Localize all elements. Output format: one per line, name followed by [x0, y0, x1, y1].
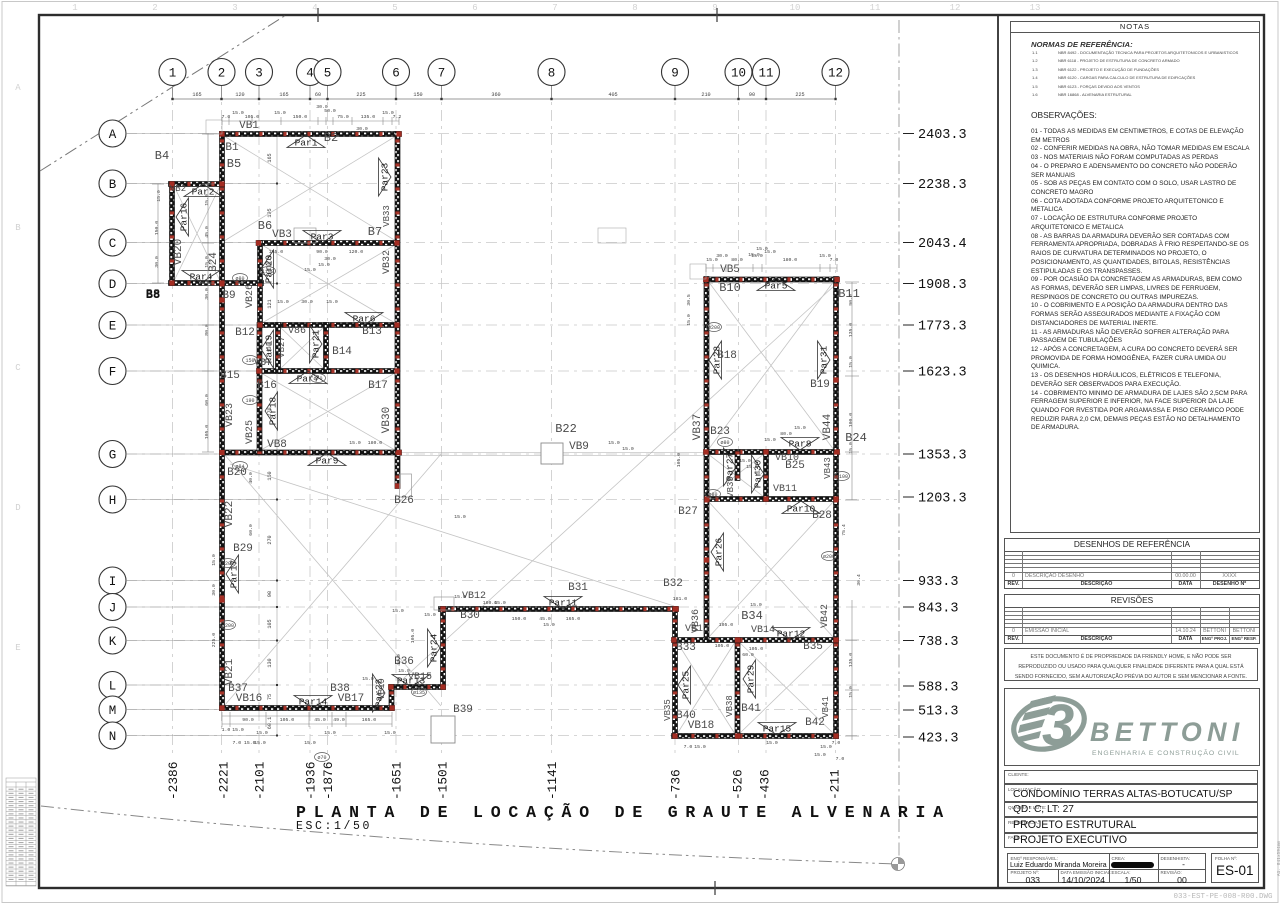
svg-text:VB23: VB23 — [225, 403, 236, 427]
svg-text:-211: -211 — [828, 769, 843, 800]
svg-text:B: B — [15, 223, 21, 233]
svg-text:75.0: 75.0 — [337, 114, 349, 120]
svg-text:15.0: 15.0 — [750, 602, 762, 608]
svg-text:15.0: 15.0 — [304, 740, 316, 746]
svg-text:15.0: 15.0 — [326, 299, 338, 305]
svg-text:15.0: 15.0 — [277, 299, 289, 305]
svg-text:Par29: Par29 — [746, 664, 757, 693]
svg-text:N: N — [109, 730, 117, 744]
svg-text:G: G — [109, 449, 117, 463]
svg-text:2238.3: 2238.3 — [918, 178, 967, 193]
svg-text:120: 120 — [235, 92, 244, 98]
svg-text:15.0: 15.0 — [820, 744, 832, 750]
svg-text:6: 6 — [392, 67, 400, 81]
svg-text:C: C — [109, 237, 117, 251]
svg-text:ø70: ø70 — [317, 755, 326, 761]
svg-text:513.3: 513.3 — [918, 705, 959, 720]
svg-text:E: E — [109, 320, 117, 334]
svg-text:11: 11 — [870, 3, 881, 13]
svg-text:D: D — [15, 503, 20, 513]
svg-text:ø84: ø84 — [235, 464, 244, 470]
svg-text:7.0: 7.0 — [836, 756, 845, 762]
svg-text:7.0: 7.0 — [832, 740, 841, 746]
svg-text:15.0: 15.0 — [748, 252, 760, 258]
svg-text:1: 1 — [72, 3, 77, 13]
svg-text:130: 130 — [267, 658, 273, 667]
svg-text:ø200: ø200 — [823, 554, 835, 560]
svg-text:225.0: 225.0 — [211, 633, 217, 648]
svg-text:VB16: VB16 — [236, 693, 262, 705]
svg-text:45.0: 45.0 — [204, 226, 210, 238]
svg-text:-1501: -1501 — [436, 761, 451, 800]
svg-text:Par16: Par16 — [179, 202, 190, 231]
svg-text:B32: B32 — [663, 578, 683, 590]
svg-text:150.0: 150.0 — [154, 221, 160, 236]
svg-text:933.3: 933.3 — [918, 575, 959, 590]
svg-text:3: 3 — [232, 3, 237, 13]
svg-text:15.0: 15.0 — [739, 458, 751, 464]
svg-text:1203.3: 1203.3 — [918, 492, 967, 507]
svg-text:15.0: 15.0 — [543, 622, 555, 628]
svg-text:15.0: 15.0 — [766, 740, 778, 746]
svg-text:105.0: 105.0 — [715, 643, 730, 649]
svg-text:B29: B29 — [233, 543, 253, 555]
svg-text:B19: B19 — [810, 379, 830, 391]
svg-text:270: 270 — [267, 535, 273, 544]
svg-text:15.0: 15.0 — [211, 554, 217, 566]
svg-text:210: 210 — [701, 92, 710, 98]
svg-text:B14: B14 — [332, 346, 352, 358]
svg-text:15.0: 15.0 — [256, 730, 268, 736]
svg-text:15.0: 15.0 — [848, 686, 854, 698]
svg-text:VB44: VB44 — [822, 413, 834, 440]
svg-text:60.0: 60.0 — [204, 394, 210, 406]
svg-text:7.0: 7.0 — [684, 744, 693, 750]
svg-text:9: 9 — [671, 67, 679, 81]
svg-text:Par3: Par3 — [311, 232, 334, 243]
svg-text:VB39: VB39 — [726, 476, 736, 498]
svg-text:1100: 1100 — [262, 269, 274, 275]
svg-text:405: 405 — [608, 92, 617, 98]
svg-text:4: 4 — [312, 3, 317, 13]
svg-text:033-EST-PE-008-R00.DWG: 033-EST-PE-008-R00.DWG — [1173, 893, 1273, 901]
svg-text:181.0: 181.0 — [673, 596, 688, 602]
svg-text:VB42: VB42 — [820, 604, 831, 628]
svg-text:VB1: VB1 — [239, 120, 259, 132]
svg-text:225: 225 — [356, 92, 365, 98]
svg-text:165.0: 165.0 — [269, 249, 284, 255]
svg-text:105.0: 105.0 — [749, 646, 764, 652]
svg-text:B17: B17 — [368, 380, 388, 392]
svg-text:90: 90 — [749, 92, 755, 98]
svg-text:VB7: VB7 — [254, 358, 272, 369]
svg-text:ENGENHARIA E CONSTRUÇÃO CIV: ENGENHARIA E CONSTRUÇÃO CIVIL — [1092, 748, 1240, 757]
svg-text:B4: B4 — [155, 149, 169, 163]
svg-text:5: 5 — [324, 67, 332, 81]
svg-text:7.0: 7.0 — [222, 114, 231, 120]
svg-text:165: 165 — [192, 92, 201, 98]
svg-text:80.0: 80.0 — [204, 324, 210, 336]
svg-text:B22: B22 — [555, 422, 577, 436]
svg-text:Par26: Par26 — [714, 537, 725, 566]
svg-text:Par23: Par23 — [380, 162, 391, 191]
svg-text:105.0: 105.0 — [245, 114, 260, 120]
svg-text:B16: B16 — [257, 380, 277, 392]
svg-text:135.0: 135.0 — [848, 653, 854, 668]
svg-text:-1651: -1651 — [390, 761, 405, 800]
svg-text:B18: B18 — [717, 350, 737, 362]
svg-text:B41: B41 — [741, 703, 761, 715]
svg-text:15.0: 15.0 — [384, 730, 396, 736]
svg-text:105: 105 — [267, 619, 273, 628]
svg-text:ø200: ø200 — [222, 623, 234, 629]
svg-text:15.0: 15.0 — [651, 608, 663, 614]
svg-text:VB2: VB2 — [170, 184, 186, 194]
svg-text:ø100: ø100 — [836, 474, 848, 480]
svg-text:ø80: ø80 — [720, 440, 729, 446]
svg-text:15.0: 15.0 — [794, 425, 806, 431]
svg-text:423.3: 423.3 — [918, 732, 959, 747]
svg-text:12: 12 — [950, 3, 961, 13]
svg-text:2403.3: 2403.3 — [918, 128, 967, 143]
svg-text:B10: B10 — [719, 281, 741, 295]
svg-text:1353.3: 1353.3 — [918, 449, 967, 464]
svg-text:Par25: Par25 — [681, 670, 692, 699]
svg-text:D: D — [109, 278, 117, 292]
svg-text:J: J — [109, 602, 117, 616]
svg-text:VB14: VB14 — [751, 625, 775, 636]
svg-text:165: 165 — [267, 153, 273, 162]
svg-text:B34: B34 — [741, 609, 763, 623]
svg-text:VB38: VB38 — [725, 695, 735, 717]
svg-text:K: K — [109, 635, 117, 649]
svg-text:15.0: 15.0 — [764, 437, 776, 443]
svg-text:60: 60 — [315, 92, 321, 98]
svg-text:VB5: VB5 — [720, 264, 740, 276]
svg-text:105.0: 105.0 — [204, 425, 210, 440]
svg-text:B25: B25 — [785, 460, 805, 472]
svg-text:90.0: 90.0 — [316, 249, 328, 255]
svg-text:-1876: -1876 — [321, 762, 336, 800]
svg-text:M: M — [109, 704, 117, 718]
svg-text:B26: B26 — [394, 495, 414, 507]
svg-text:ø70: ø70 — [313, 376, 322, 382]
svg-text:7: 7 — [552, 3, 557, 13]
svg-text:ø135: ø135 — [413, 690, 425, 696]
svg-text:15.0: 15.0 — [848, 356, 854, 368]
svg-text:B27: B27 — [678, 506, 698, 518]
svg-text:135.0: 135.0 — [848, 323, 854, 338]
svg-text:-526: -526 — [731, 769, 746, 800]
svg-text:F: F — [109, 366, 117, 380]
svg-text:30.5: 30.5 — [686, 294, 692, 306]
svg-text:B31: B31 — [568, 582, 588, 594]
svg-text:-736: -736 — [669, 769, 684, 800]
svg-text:225: 225 — [795, 92, 804, 98]
svg-text:B30: B30 — [460, 610, 480, 622]
svg-text:VB27: VB27 — [277, 336, 287, 358]
svg-text:15.0: 15.0 — [204, 194, 210, 206]
svg-text:B15: B15 — [220, 370, 240, 382]
svg-text:165.0: 165.0 — [566, 616, 581, 622]
svg-text:150: 150 — [413, 92, 422, 98]
svg-text:B35: B35 — [803, 641, 823, 653]
svg-text:6: 6 — [472, 3, 477, 13]
svg-text:15.0: 15.0 — [204, 256, 210, 268]
svg-text:Par2: Par2 — [192, 187, 215, 198]
svg-text:10: 10 — [731, 67, 746, 81]
svg-text:A1, 841x594mm: A1, 841x594mm — [1276, 841, 1280, 876]
svg-text:4: 4 — [306, 67, 314, 81]
svg-text:ESC:1/50: ESC:1/50 — [296, 820, 372, 833]
svg-text:VB21: VB21 — [224, 658, 236, 685]
svg-text:Par11: Par11 — [549, 598, 578, 609]
svg-text:Par18: Par18 — [268, 396, 279, 425]
svg-text:VB13: VB13 — [685, 624, 709, 635]
svg-text:Par9: Par9 — [316, 456, 339, 467]
svg-text:B28: B28 — [812, 510, 832, 522]
svg-text:-2101: -2101 — [253, 761, 268, 800]
svg-text:B2: B2 — [324, 131, 338, 145]
svg-text:15.0: 15.0 — [232, 727, 244, 733]
svg-text:15.0: 15.0 — [392, 608, 404, 614]
svg-text:738.3: 738.3 — [918, 635, 959, 650]
svg-text:VB19: VB19 — [377, 678, 387, 700]
svg-text:7.0 15.0: 7.0 15.0 — [232, 740, 255, 746]
svg-text:B39: B39 — [453, 704, 473, 716]
svg-text:Par31: Par31 — [819, 345, 830, 374]
svg-text:Par24: Par24 — [429, 633, 440, 662]
svg-text:165: 165 — [279, 92, 288, 98]
svg-text:VB32: VB32 — [382, 250, 393, 274]
svg-text:30.0: 30.0 — [324, 256, 336, 262]
svg-text:15.0: 15.0 — [756, 246, 768, 252]
svg-text:2: 2 — [218, 67, 226, 81]
svg-text:80.0: 80.0 — [780, 431, 792, 437]
svg-text:100.0: 100.0 — [848, 413, 854, 428]
svg-text:30.0: 30.0 — [356, 126, 368, 132]
svg-text:VB37: VB37 — [692, 414, 704, 440]
svg-text:-2221: -2221 — [217, 761, 232, 800]
svg-text:B33: B33 — [676, 642, 696, 654]
svg-text:15.0: 15.0 — [686, 314, 692, 326]
svg-text:1773.3: 1773.3 — [918, 320, 967, 335]
svg-text:40.0: 40.0 — [396, 654, 402, 666]
svg-text:Par1: Par1 — [295, 138, 318, 149]
svg-text:B: B — [109, 178, 117, 192]
svg-text:B6: B6 — [258, 219, 272, 233]
svg-text:30.0: 30.0 — [716, 253, 728, 259]
svg-text:VB8: VB8 — [267, 439, 287, 451]
svg-text:121: 121 — [267, 299, 273, 308]
svg-text:Par12: Par12 — [777, 629, 806, 640]
svg-text:13: 13 — [1030, 3, 1041, 13]
svg-text:B7: B7 — [368, 225, 382, 239]
svg-text:90.0: 90.0 — [242, 717, 254, 723]
svg-text:40.0: 40.0 — [248, 472, 254, 484]
svg-text:12: 12 — [828, 67, 843, 81]
svg-text:3: 3 — [255, 67, 263, 81]
svg-text:15.0: 15.0 — [814, 752, 826, 758]
svg-text:7.0: 7.0 — [830, 257, 839, 263]
svg-text:ø80: ø80 — [708, 492, 717, 498]
svg-text:165.0: 165.0 — [362, 717, 377, 723]
svg-text:7.2: 7.2 — [393, 114, 402, 120]
svg-text:Par8: Par8 — [789, 439, 812, 450]
svg-text:VB22: VB22 — [224, 501, 236, 527]
svg-text:-1936: -1936 — [304, 762, 319, 800]
svg-text:105.0: 105.0 — [410, 629, 416, 644]
svg-text:30.0: 30.0 — [204, 288, 210, 300]
svg-text:135.0: 135.0 — [361, 114, 376, 120]
svg-text:VB3: VB3 — [272, 229, 292, 241]
svg-text:15.0: 15.0 — [362, 676, 374, 682]
svg-text:15.0: 15.0 — [424, 612, 436, 618]
svg-text:VB30: VB30 — [381, 407, 393, 433]
svg-text:A: A — [15, 83, 21, 93]
svg-text:B5: B5 — [227, 157, 241, 171]
svg-text:Par21: Par21 — [311, 329, 322, 358]
svg-text:ø200: ø200 — [222, 561, 234, 567]
svg-text:60.0: 60.0 — [742, 652, 754, 658]
svg-text:60.1: 60.1 — [267, 717, 273, 729]
svg-text:VB20: VB20 — [173, 239, 185, 265]
svg-text:49.0: 49.0 — [333, 717, 345, 723]
svg-text:Par6: Par6 — [353, 314, 376, 325]
svg-text:15.0: 15.0 — [746, 464, 758, 470]
svg-text:Par5: Par5 — [765, 281, 788, 292]
svg-text:75: 75 — [267, 694, 273, 700]
svg-text:VB11: VB11 — [773, 484, 797, 495]
svg-text:30.4: 30.4 — [856, 574, 862, 586]
svg-text:B12: B12 — [235, 327, 255, 339]
svg-text:7: 7 — [438, 67, 446, 81]
svg-text:588.3: 588.3 — [918, 681, 959, 696]
svg-text:I: I — [109, 575, 117, 589]
svg-text:150: 150 — [245, 358, 254, 364]
svg-text:1: 1 — [169, 67, 177, 81]
svg-text:VB33: VB33 — [382, 205, 392, 227]
svg-text:E: E — [15, 643, 20, 653]
svg-text:C: C — [15, 363, 21, 373]
svg-text:B13: B13 — [362, 326, 382, 338]
svg-text:105.0: 105.0 — [280, 717, 295, 723]
svg-text:B1: B1 — [225, 142, 239, 154]
svg-text:15.0: 15.0 — [398, 668, 410, 674]
svg-text:15.0: 15.0 — [494, 600, 506, 606]
svg-text:180.0: 180.0 — [368, 440, 383, 446]
svg-text:60.0: 60.0 — [754, 470, 766, 476]
svg-text:5: 5 — [392, 3, 397, 13]
svg-text:15.0: 15.0 — [156, 190, 162, 202]
svg-text:V86: V86 — [288, 326, 306, 337]
svg-text:B42: B42 — [805, 717, 825, 729]
svg-text:45.0: 45.0 — [539, 616, 551, 622]
svg-text:Par15: Par15 — [763, 724, 792, 735]
svg-text:80.0: 80.0 — [731, 257, 743, 263]
svg-text:120.0: 120.0 — [349, 249, 364, 255]
svg-text:30.0: 30.0 — [154, 256, 160, 268]
svg-text:VB17: VB17 — [338, 693, 364, 705]
svg-text:B23: B23 — [710, 426, 730, 438]
svg-text:15.0: 15.0 — [349, 440, 361, 446]
svg-text:360: 360 — [491, 92, 500, 98]
svg-text:8: 8 — [548, 67, 556, 81]
svg-text:VB15: VB15 — [408, 672, 432, 683]
svg-text:BETTONI: BETTONI — [1090, 717, 1244, 747]
svg-text:60.0: 60.0 — [248, 524, 254, 536]
svg-text:VB26: VB26 — [245, 284, 256, 308]
svg-text:PLANTA DE LOCAÇÃO DE GRAUTE AL: PLANTA DE LOCAÇÃO DE GRAUTE ALVENARIA — [296, 803, 951, 822]
svg-text:1908.3: 1908.3 — [918, 278, 967, 293]
svg-text:15.0: 15.0 — [454, 594, 466, 600]
svg-text:30.0: 30.0 — [301, 299, 313, 305]
svg-text:50.0: 50.0 — [324, 108, 336, 114]
svg-text:90: 90 — [267, 591, 273, 597]
svg-text:150.0: 150.0 — [512, 616, 527, 622]
svg-text:B9: B9 — [222, 290, 235, 302]
svg-text:15.0: 15.0 — [324, 730, 336, 736]
svg-text:90.0: 90.0 — [848, 294, 854, 306]
svg-text:105.0: 105.0 — [719, 622, 734, 628]
svg-text:15.0: 15.0 — [454, 514, 466, 520]
svg-text:45.0: 45.0 — [314, 717, 326, 723]
svg-text:B8: B8 — [146, 288, 160, 302]
svg-text:150.0: 150.0 — [293, 114, 308, 120]
svg-text:ø200: ø200 — [708, 325, 720, 331]
svg-text:15.0: 15.0 — [232, 110, 244, 116]
svg-text:190: 190 — [245, 398, 254, 404]
svg-text:15.0: 15.0 — [254, 740, 266, 746]
svg-text:Par4: Par4 — [190, 272, 213, 283]
svg-text:11: 11 — [758, 67, 773, 81]
svg-text:15.0: 15.0 — [318, 262, 330, 268]
svg-text:75.4: 75.4 — [841, 524, 847, 536]
svg-text:15.0: 15.0 — [274, 110, 286, 116]
svg-text:VB35: VB35 — [663, 699, 673, 721]
svg-text:VB41: VB41 — [821, 696, 831, 718]
svg-text:105.0: 105.0 — [676, 453, 682, 468]
svg-text:15.0: 15.0 — [694, 744, 706, 750]
svg-text:180.0: 180.0 — [783, 257, 798, 263]
svg-text:15.0: 15.0 — [608, 440, 620, 446]
svg-text:10: 10 — [790, 3, 801, 13]
svg-text:15.0: 15.0 — [304, 267, 316, 273]
svg-text:15.0: 15.0 — [622, 446, 634, 452]
svg-text:-1141: -1141 — [545, 761, 560, 800]
svg-text:2: 2 — [152, 3, 157, 13]
svg-text:Par14: Par14 — [299, 697, 328, 708]
svg-text:VB43: VB43 — [823, 457, 833, 479]
svg-text:2043.4: 2043.4 — [918, 237, 967, 252]
svg-text:-2386: -2386 — [166, 762, 181, 800]
svg-text:843.3: 843.3 — [918, 602, 959, 617]
svg-text:VB18: VB18 — [688, 720, 714, 732]
svg-text:H: H — [109, 494, 117, 508]
svg-text:1623.3: 1623.3 — [918, 366, 967, 381]
svg-text:A: A — [109, 128, 117, 142]
svg-text:VB25: VB25 — [245, 420, 256, 444]
svg-text:VB9: VB9 — [569, 441, 589, 453]
svg-text:ø80: ø80 — [235, 276, 244, 282]
svg-text:-436: -436 — [758, 769, 773, 800]
svg-text:L: L — [109, 680, 117, 694]
svg-text:8: 8 — [632, 3, 637, 13]
svg-text:30.0: 30.0 — [211, 584, 217, 596]
svg-text:1.0: 1.0 — [222, 727, 231, 733]
